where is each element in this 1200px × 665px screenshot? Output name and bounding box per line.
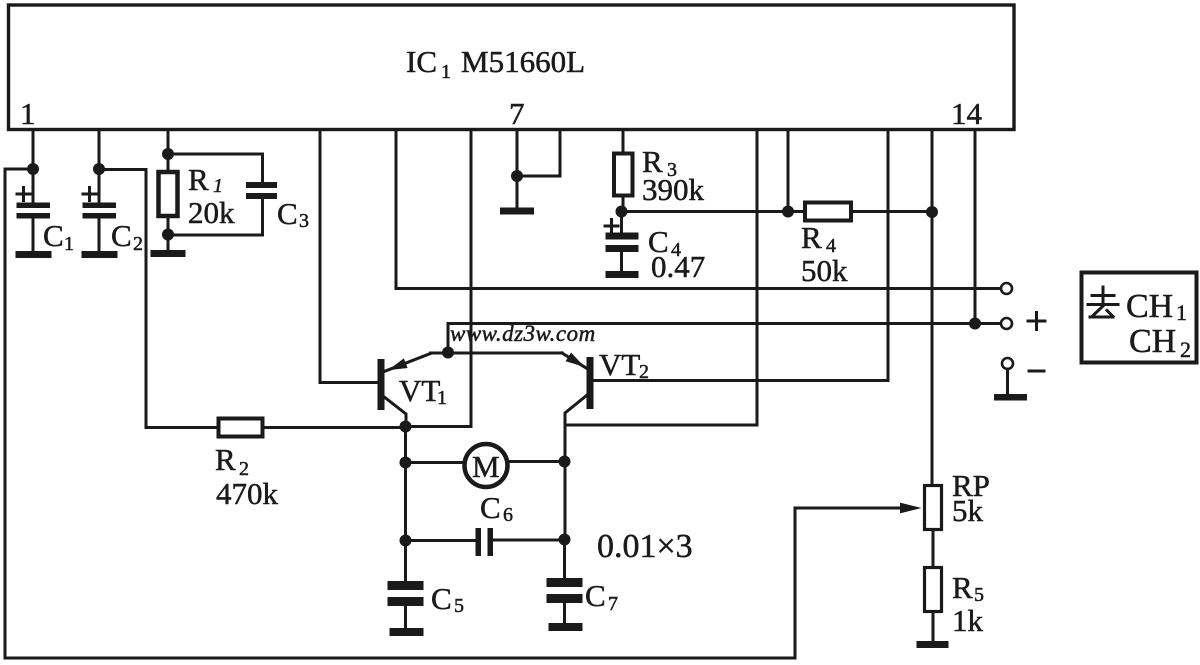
svg-text:7: 7 (608, 593, 618, 615)
svg-text:IC: IC (406, 44, 437, 79)
svg-text:2: 2 (639, 361, 649, 383)
svg-text:C: C (431, 581, 452, 616)
svg-text:C: C (585, 578, 606, 613)
svg-text:C: C (480, 490, 501, 525)
svg-text:2: 2 (133, 233, 143, 255)
svg-text:CH: CH (1129, 323, 1176, 360)
svg-text:C: C (43, 218, 64, 253)
svg-text:20k: 20k (188, 195, 235, 230)
svg-text:1: 1 (437, 387, 447, 409)
svg-text:R: R (801, 220, 822, 255)
svg-text:1: 1 (20, 96, 36, 131)
svg-text:7: 7 (509, 96, 525, 131)
svg-text:R: R (215, 442, 236, 477)
svg-text:5: 5 (454, 595, 464, 617)
svg-text:1: 1 (213, 175, 223, 197)
svg-text:C: C (277, 196, 298, 231)
svg-text:www.dz3w.com: www.dz3w.com (450, 321, 596, 346)
svg-text:CH: CH (1126, 288, 1173, 325)
svg-text:0.01×3: 0.01×3 (597, 528, 693, 565)
svg-text:14: 14 (951, 96, 983, 131)
svg-text:1k: 1k (952, 603, 984, 638)
svg-text:5k: 5k (952, 493, 984, 528)
svg-text:R: R (952, 570, 973, 605)
svg-text:0.47: 0.47 (651, 249, 705, 284)
svg-text:1: 1 (1176, 300, 1187, 325)
svg-text:1: 1 (441, 61, 451, 83)
svg-text:1: 1 (64, 233, 74, 255)
svg-text:390k: 390k (642, 172, 705, 207)
svg-text:6: 6 (503, 504, 513, 526)
svg-text:50k: 50k (801, 253, 848, 288)
svg-text:C: C (111, 218, 132, 253)
svg-text:M51660L: M51660L (461, 44, 585, 79)
svg-text:3: 3 (299, 210, 309, 232)
svg-text:R: R (188, 162, 209, 197)
svg-text:VT: VT (599, 347, 640, 382)
svg-text:M: M (472, 449, 500, 484)
svg-text:470k: 470k (216, 476, 279, 511)
svg-text:2: 2 (1180, 337, 1191, 362)
svg-text:VT: VT (399, 373, 440, 408)
